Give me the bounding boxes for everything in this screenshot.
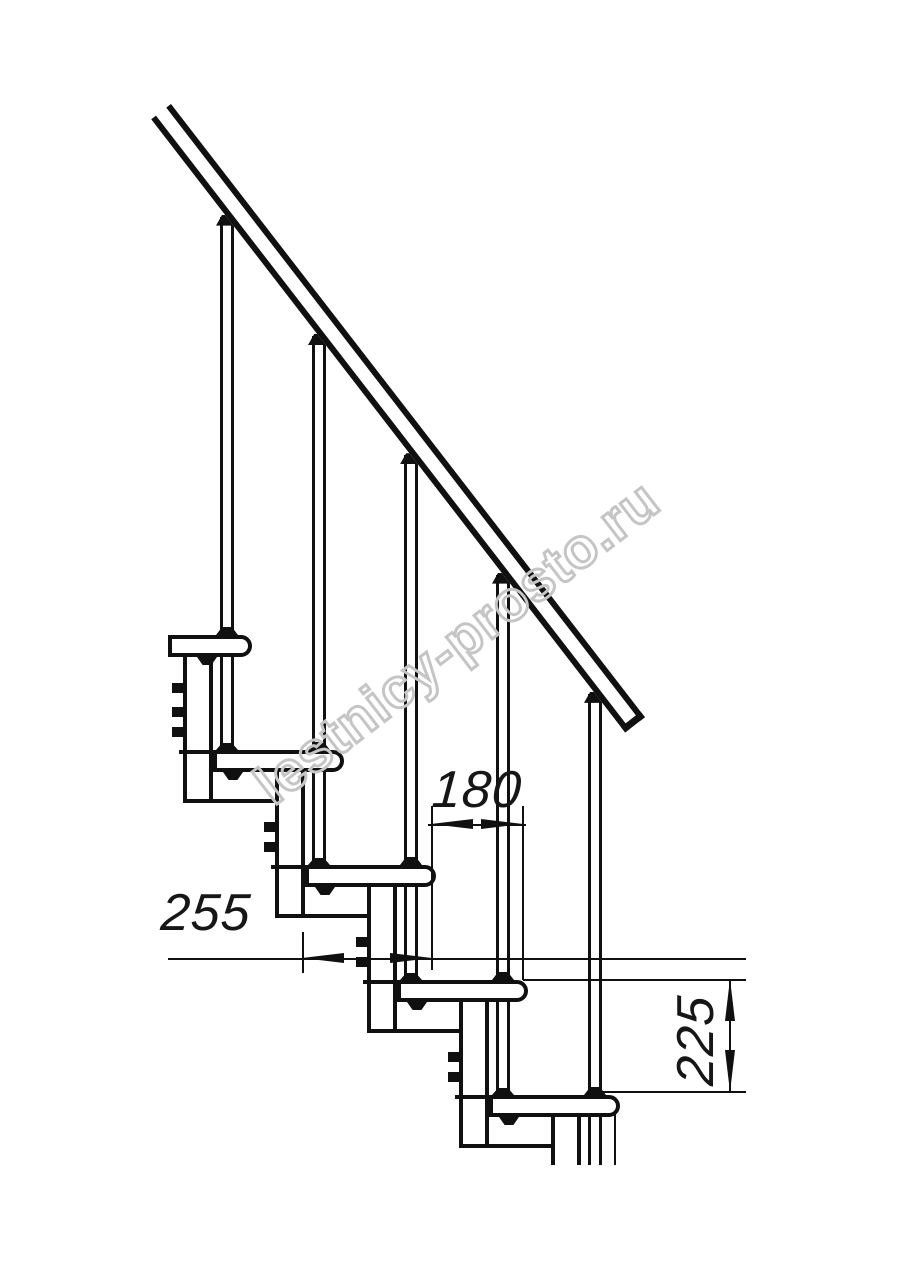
bolt — [448, 1052, 460, 1062]
baluster-rod-lower — [588, 1115, 602, 1165]
tread-top-extension — [363, 980, 401, 984]
support-column — [459, 1002, 489, 1148]
tread — [168, 635, 252, 657]
baluster-rod-upper — [588, 694, 602, 1097]
bolt — [172, 727, 184, 737]
dimension-line-depth — [168, 958, 746, 960]
bolt — [264, 842, 276, 852]
arrowhead-rise-top — [725, 979, 735, 1021]
module-joint-line — [459, 1144, 555, 1148]
tread-bottom-bolt — [499, 1117, 519, 1125]
bolt — [172, 707, 184, 717]
extension-line-going-left — [431, 806, 433, 970]
arrowhead-going-left — [431, 819, 473, 829]
tread-bottom-bolt — [315, 887, 335, 895]
technical-drawing-canvas: 180 255 225 lestnicy-prosto.ru — [0, 0, 914, 1280]
tread — [397, 980, 528, 1002]
tread-top-extension — [179, 750, 217, 754]
tread — [305, 865, 436, 887]
dimension-label-rise: 225 — [666, 978, 718, 1102]
dimension-label-going: 180 — [415, 760, 539, 820]
arrowhead-depth-left — [302, 953, 344, 963]
module-joint-line — [367, 1029, 463, 1033]
extension-line-bottom-step — [614, 1113, 616, 1165]
bolt — [356, 937, 368, 947]
support-column — [551, 1117, 581, 1165]
extension-line-going-right — [522, 806, 524, 980]
baluster-rod-lower — [496, 1000, 510, 1095]
dimension-label-tread-depth: 255 — [144, 883, 268, 943]
arrowhead-depth-right — [390, 953, 432, 963]
bolt — [448, 1072, 460, 1082]
support-column — [183, 657, 213, 803]
tread — [489, 1095, 620, 1117]
tread-top-extension — [455, 1095, 493, 1099]
arrowhead-rise-bottom — [725, 1050, 735, 1092]
baluster-rod-lower — [220, 655, 234, 750]
arrowhead-going-right — [481, 819, 523, 829]
baluster-rod-lower — [404, 885, 418, 980]
tread-top-extension — [271, 865, 309, 869]
baluster-rod-upper — [312, 336, 326, 752]
baluster-rod-upper — [220, 217, 234, 637]
bolt — [172, 683, 184, 693]
tread-bottom-bolt — [407, 1002, 427, 1010]
module-joint-line — [275, 914, 371, 918]
